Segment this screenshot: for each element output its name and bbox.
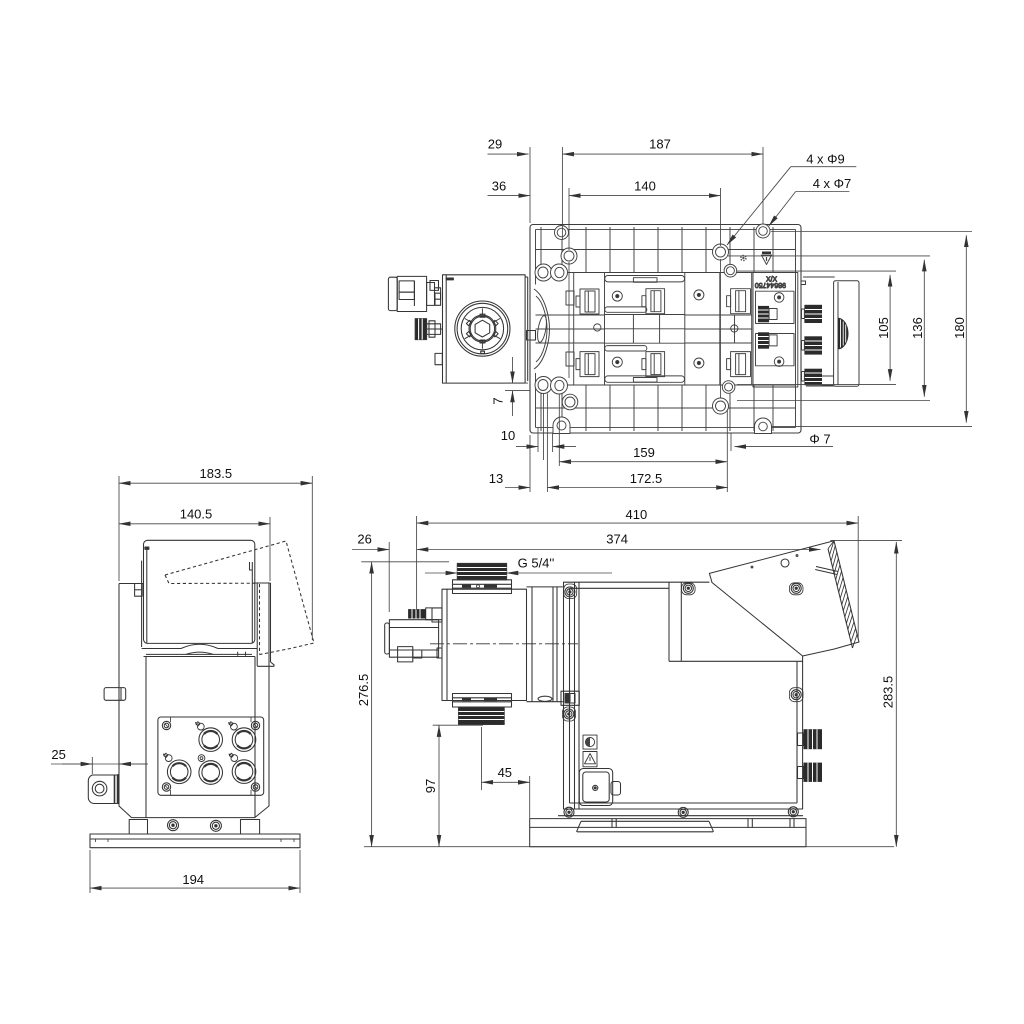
svg-text:374: 374 [606, 532, 628, 547]
svg-text:140.5: 140.5 [180, 507, 213, 522]
svg-text:4 x Φ7: 4 x Φ7 [813, 176, 852, 191]
svg-text:276.5: 276.5 [356, 674, 371, 707]
svg-text:98644750: 98644750 [755, 281, 786, 288]
svg-text:105: 105 [876, 317, 891, 339]
svg-text:7: 7 [490, 397, 505, 404]
svg-text:Φ 7: Φ 7 [809, 432, 830, 447]
svg-text:136: 136 [910, 317, 925, 339]
svg-text:45: 45 [498, 765, 512, 780]
svg-text:140: 140 [634, 178, 656, 193]
svg-text:G 5/4'': G 5/4'' [518, 555, 555, 570]
svg-text:25: 25 [51, 747, 65, 762]
svg-text:180: 180 [952, 317, 967, 339]
svg-text:410: 410 [626, 507, 648, 522]
svg-text:187: 187 [649, 137, 671, 152]
svg-text:97: 97 [423, 779, 438, 793]
svg-text:172.5: 172.5 [630, 471, 663, 486]
svg-text:29: 29 [488, 137, 502, 152]
svg-text:13: 13 [489, 471, 503, 486]
svg-text:36: 36 [492, 178, 506, 193]
svg-text:283.5: 283.5 [880, 676, 895, 709]
svg-text:194: 194 [182, 872, 204, 887]
svg-text:26: 26 [357, 532, 371, 547]
svg-text:183.5: 183.5 [200, 466, 233, 481]
svg-text:4 x Φ9: 4 x Φ9 [806, 151, 845, 166]
svg-text:10: 10 [501, 428, 515, 443]
svg-text:159: 159 [633, 445, 655, 460]
